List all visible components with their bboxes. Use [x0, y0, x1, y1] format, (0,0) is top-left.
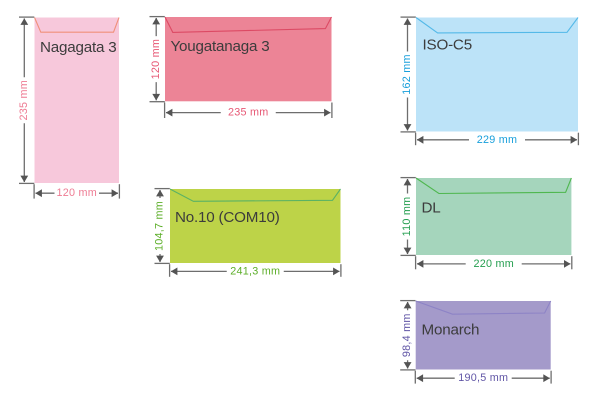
- svg-text:241,3 mm: 241,3 mm: [230, 265, 280, 277]
- svg-text:No.10 (COM10): No.10 (COM10): [175, 209, 280, 226]
- svg-text:120 mm: 120 mm: [150, 39, 162, 80]
- svg-text:120 mm: 120 mm: [56, 187, 97, 199]
- svg-text:98,4 mm: 98,4 mm: [401, 313, 413, 357]
- svg-text:190,5 mm: 190,5 mm: [458, 372, 508, 384]
- svg-text:235 mm: 235 mm: [228, 107, 269, 119]
- svg-text:Nagagata 3: Nagagata 3: [40, 39, 117, 56]
- svg-text:ISO-C5: ISO-C5: [423, 37, 472, 54]
- svg-text:235 mm: 235 mm: [18, 80, 30, 121]
- svg-text:110 mm: 110 mm: [401, 197, 413, 237]
- svg-text:104,7 mm: 104,7 mm: [154, 201, 166, 251]
- svg-text:Yougatanaga 3: Yougatanaga 3: [171, 38, 270, 55]
- svg-text:Monarch: Monarch: [422, 322, 480, 339]
- svg-text:DL: DL: [422, 200, 441, 217]
- svg-text:229 mm: 229 mm: [477, 134, 518, 146]
- svg-text:220 mm: 220 mm: [473, 258, 514, 270]
- svg-text:162 mm: 162 mm: [401, 54, 413, 95]
